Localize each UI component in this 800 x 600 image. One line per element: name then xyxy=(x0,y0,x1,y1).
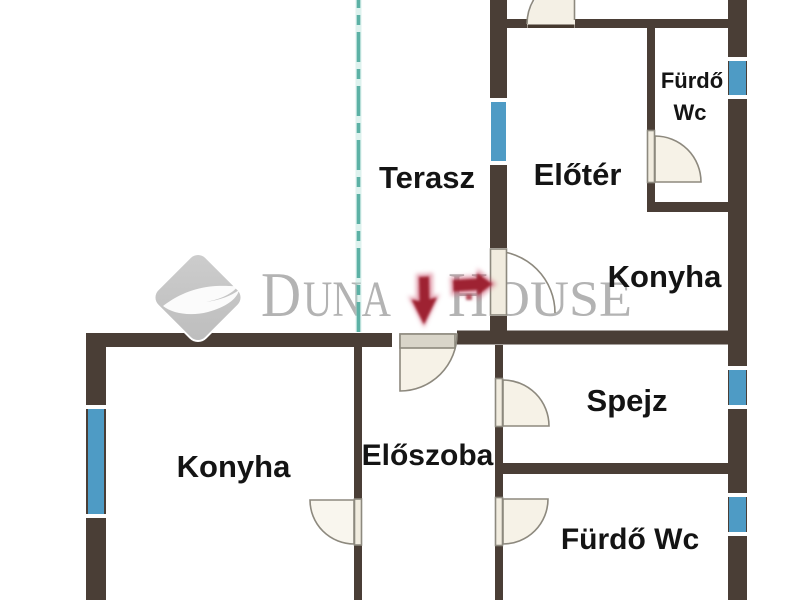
svg-text:Konyha: Konyha xyxy=(608,259,722,294)
svg-text:Spejz: Spejz xyxy=(587,383,668,418)
svg-text:Előtér: Előtér xyxy=(534,157,622,192)
svg-text:Wc: Wc xyxy=(674,100,707,125)
svg-text:Fürdő: Fürdő xyxy=(661,68,723,93)
svg-text:Előszoba: Előszoba xyxy=(362,439,494,472)
svg-text:UNA: UNA xyxy=(303,272,391,328)
svg-text:Terasz: Terasz xyxy=(379,160,475,195)
svg-text:D: D xyxy=(261,260,301,330)
svg-text:Fürdő Wc: Fürdő Wc xyxy=(561,523,699,556)
svg-text:Konyha: Konyha xyxy=(177,449,291,484)
